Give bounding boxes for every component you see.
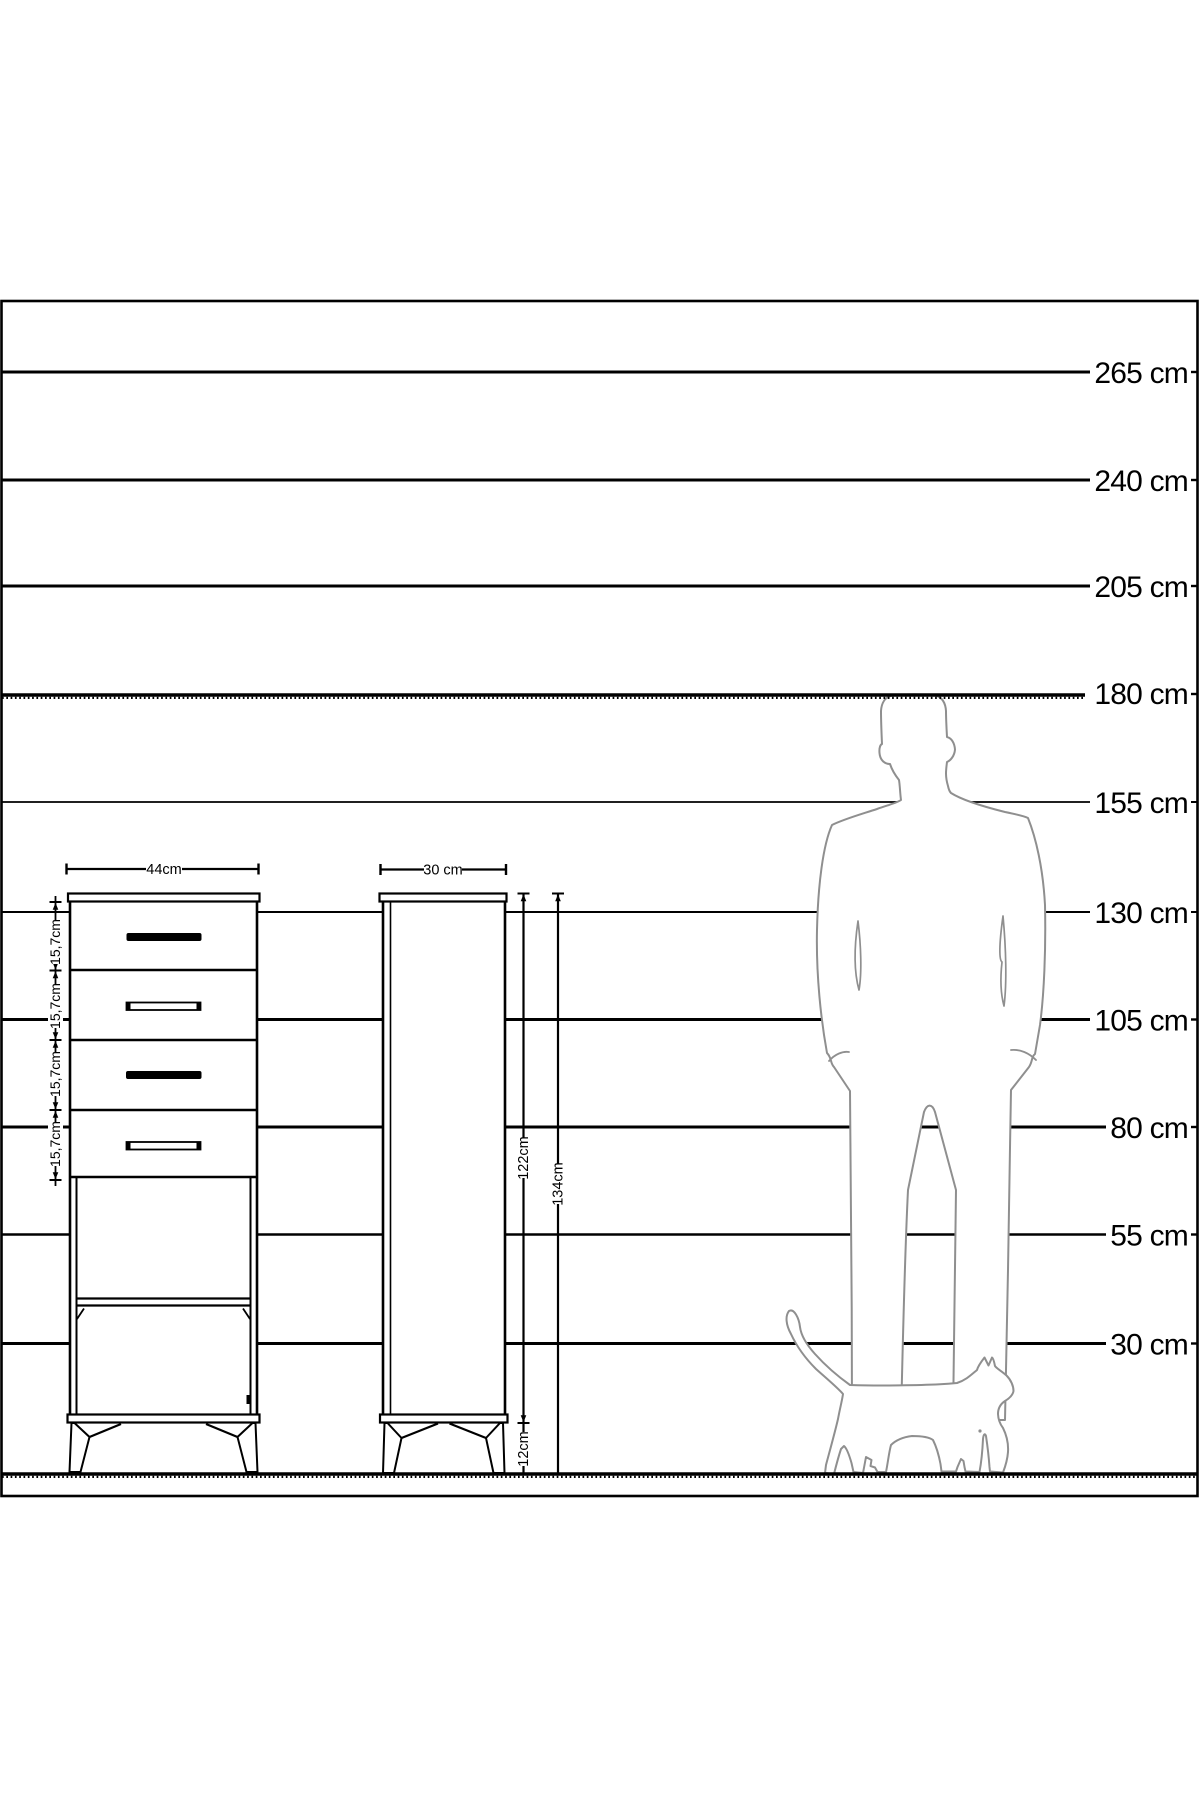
svg-text:205 cm: 205 cm: [1094, 571, 1188, 604]
svg-text:30 cm: 30 cm: [423, 863, 463, 879]
svg-text:180 cm: 180 cm: [1094, 678, 1188, 711]
svg-text:55 cm: 55 cm: [1110, 1220, 1188, 1253]
svg-text:15,7cm: 15,7cm: [47, 919, 63, 965]
svg-text:44cm: 44cm: [146, 862, 181, 878]
svg-text:80 cm: 80 cm: [1110, 1112, 1188, 1145]
svg-text:105 cm: 105 cm: [1094, 1005, 1188, 1038]
svg-text:15,7cm: 15,7cm: [47, 1121, 63, 1167]
svg-text:12cm: 12cm: [516, 1431, 532, 1466]
svg-text:30 cm: 30 cm: [1110, 1329, 1188, 1362]
svg-text:15,7cm: 15,7cm: [47, 983, 63, 1029]
svg-text:130 cm: 130 cm: [1094, 897, 1188, 930]
svg-text:122cm: 122cm: [516, 1136, 532, 1180]
svg-text:265 cm: 265 cm: [1094, 357, 1188, 390]
svg-text:155 cm: 155 cm: [1094, 787, 1188, 820]
svg-text:240 cm: 240 cm: [1094, 465, 1188, 498]
svg-text:15,7cm: 15,7cm: [47, 1051, 63, 1097]
svg-text:134cm: 134cm: [551, 1162, 567, 1206]
